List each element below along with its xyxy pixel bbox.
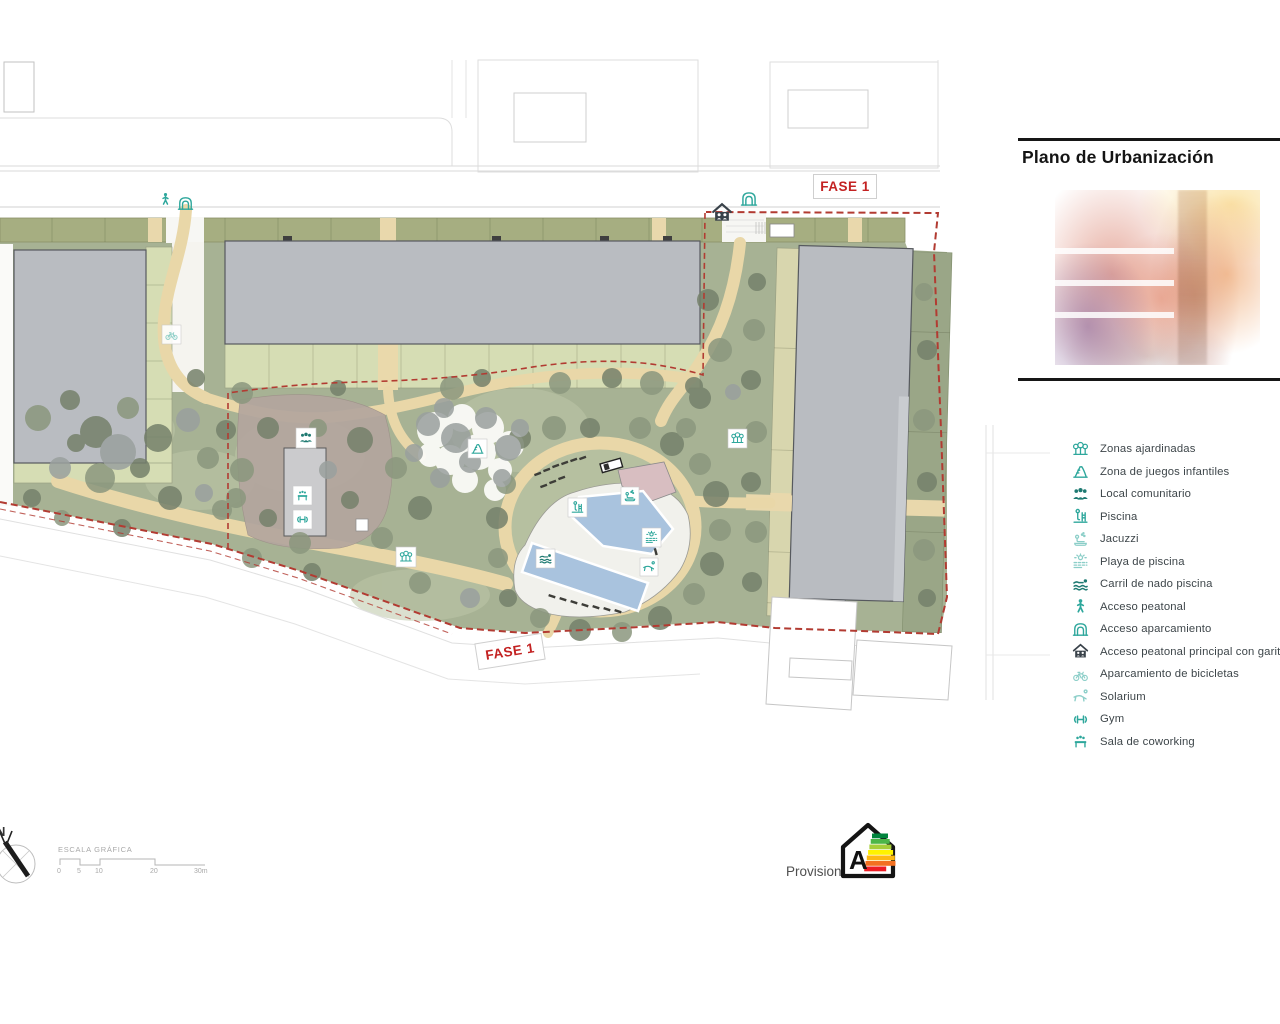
legend-item: Acceso peatonal bbox=[1070, 596, 1280, 619]
scale-bar: ESCALA GRÁFICA 0 5 10 20 30m bbox=[58, 845, 218, 881]
gym-icon bbox=[293, 510, 312, 529]
page-title: Plano de Urbanización bbox=[1022, 147, 1214, 168]
neighbor-outlines bbox=[0, 60, 938, 172]
legend-item-label: Playa de piscina bbox=[1100, 556, 1185, 568]
legend-item-label: Sala de coworking bbox=[1100, 736, 1195, 748]
coworking-icon bbox=[293, 486, 312, 505]
parking-access-icon bbox=[742, 193, 757, 205]
bicycle-icon bbox=[1070, 665, 1091, 684]
legend-item: Acceso aparcamiento bbox=[1070, 618, 1280, 641]
legend-item: Zona de juegos infantiles bbox=[1070, 461, 1280, 484]
legend-item: Zonas ajardinadas bbox=[1070, 438, 1280, 461]
pool-beach-icon bbox=[642, 528, 661, 547]
legend-item-label: Solarium bbox=[1100, 691, 1146, 703]
playground-icon bbox=[1070, 462, 1091, 481]
legend-item-label: Aparcamiento de bicicletas bbox=[1100, 668, 1239, 680]
pool-complex bbox=[505, 443, 695, 617]
solarium-icon bbox=[640, 558, 658, 576]
legend: Zonas ajardinadas Zona de juegos infanti… bbox=[1070, 438, 1280, 753]
trees-icon bbox=[1070, 440, 1091, 459]
parking-access-icon bbox=[1070, 620, 1091, 639]
pool-beach-icon bbox=[1070, 552, 1091, 571]
scale-tick: 0 bbox=[57, 868, 61, 875]
scale-tick: 5 bbox=[77, 868, 81, 875]
community-icon bbox=[1070, 485, 1091, 504]
legend-item-label: Acceso peatonal principal con garita de bbox=[1100, 646, 1280, 658]
legend-item-label: Gym bbox=[1100, 713, 1124, 725]
pool-ladder-icon bbox=[568, 498, 587, 517]
community-icon bbox=[296, 428, 316, 448]
bicycle-icon bbox=[162, 325, 181, 344]
legend-item: Solarium bbox=[1070, 686, 1280, 709]
trees-icon bbox=[396, 547, 416, 567]
scale-bar-graphic bbox=[58, 857, 208, 867]
rear-garden-band bbox=[0, 217, 905, 243]
gym-icon bbox=[1070, 710, 1091, 729]
legend-item: Jacuzzi bbox=[1070, 528, 1280, 551]
solarium-icon bbox=[1070, 687, 1091, 706]
pool-ladder-icon bbox=[1070, 507, 1091, 526]
swim-lane-icon bbox=[1070, 575, 1091, 594]
scale-bar-label: ESCALA GRÁFICA bbox=[58, 845, 132, 854]
gatehouse-icon bbox=[1070, 642, 1091, 661]
legend-item-label: Jacuzzi bbox=[1100, 533, 1139, 545]
west-road-strip bbox=[0, 244, 13, 506]
title-rule-bottom bbox=[1018, 378, 1280, 381]
legend-item-label: Local comunitario bbox=[1100, 488, 1191, 500]
pedestrian-icon bbox=[1070, 597, 1091, 616]
phase-label-top: FASE 1 bbox=[813, 174, 877, 199]
legend-item: Local comunitario bbox=[1070, 483, 1280, 506]
legend-item: Aparcamiento de bicicletas bbox=[1070, 663, 1280, 686]
legend-item: Piscina bbox=[1070, 506, 1280, 529]
legend-item-label: Zona de juegos infantiles bbox=[1100, 466, 1229, 478]
legend-item: Acceso peatonal principal con garita de bbox=[1070, 641, 1280, 664]
jacuzzi-icon bbox=[621, 487, 639, 505]
jacuzzi-icon bbox=[1070, 530, 1091, 549]
project-render-image bbox=[1055, 190, 1260, 365]
swim-lane-icon bbox=[536, 549, 555, 568]
energy-rating-letter: A bbox=[849, 845, 868, 875]
legend-item-label: Acceso aparcamiento bbox=[1100, 623, 1211, 635]
legend-item-label: Acceso peatonal bbox=[1100, 601, 1186, 613]
legend-item: Playa de piscina bbox=[1070, 551, 1280, 574]
legend-item: Sala de coworking bbox=[1070, 731, 1280, 754]
north-label: N bbox=[0, 824, 5, 839]
legend-item-label: Piscina bbox=[1100, 511, 1137, 523]
scale-tick: 20 bbox=[150, 868, 158, 875]
pedestrian-icon bbox=[163, 193, 168, 204]
legend-item: Gym bbox=[1070, 708, 1280, 731]
playground-icon bbox=[468, 439, 487, 458]
building-top bbox=[225, 241, 700, 390]
energy-rating-badge: A bbox=[836, 818, 900, 884]
scale-tick: 10 bbox=[95, 868, 103, 875]
legend-item: Carril de nado piscina bbox=[1070, 573, 1280, 596]
legend-item-label: Zonas ajardinadas bbox=[1100, 443, 1196, 455]
title-rule-top bbox=[1018, 138, 1280, 141]
scale-tick: 30m bbox=[194, 868, 208, 875]
trees-icon bbox=[728, 429, 747, 448]
legend-item-label: Carril de nado piscina bbox=[1100, 578, 1213, 590]
communal-area bbox=[237, 395, 392, 549]
north-arrow: N bbox=[0, 818, 50, 894]
coworking-icon bbox=[1070, 732, 1091, 751]
